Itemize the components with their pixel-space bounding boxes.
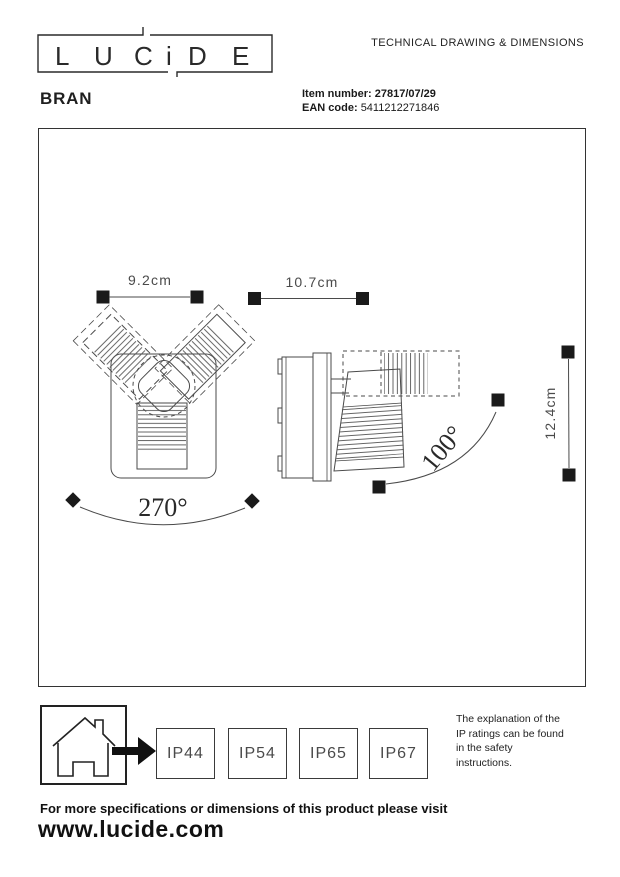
logo-letter-c: C xyxy=(134,41,153,71)
logo-letter-e: E xyxy=(232,41,249,71)
ip-rating-ip65: IP65 xyxy=(299,728,358,779)
dim-label-front-width: 9.2cm xyxy=(128,272,172,288)
ip-note-line: The explanation of the xyxy=(456,712,564,727)
pan-angle-label: 270° xyxy=(138,493,187,522)
document-title: TECHNICAL DRAWING & DIMENSIONS xyxy=(371,37,584,49)
dimension-height: 12.4cm xyxy=(542,346,576,482)
ean-value: 5411212271846 xyxy=(361,102,440,114)
ip67-label: IP67 xyxy=(380,745,417,763)
dimension-front-width: 9.2cm xyxy=(97,272,204,304)
ip54-label: IP54 xyxy=(239,745,276,763)
product-name: BRAN xyxy=(40,89,92,109)
technical-drawing: 9.2cm 10.7cm 12.4cm xyxy=(39,129,585,686)
ean-label: EAN code: xyxy=(302,102,358,114)
logo-letter-d: D xyxy=(188,41,207,71)
technical-drawing-frame: 9.2cm 10.7cm 12.4cm xyxy=(38,128,586,687)
website-link[interactable]: www.lucide.com xyxy=(38,816,224,843)
logo-letter-l: L xyxy=(55,41,69,71)
ean-row: EAN code: 5411212271846 xyxy=(302,101,439,115)
dim-label-side-width: 10.7cm xyxy=(285,274,338,290)
lucide-logo: L U C i D E xyxy=(37,24,277,80)
ip-note: The explanation of the IP ratings can be… xyxy=(456,712,564,770)
item-number-label: Item number: xyxy=(302,88,372,100)
arrow-right-icon xyxy=(110,736,158,766)
footer-text: For more specifications or dimensions of… xyxy=(40,801,447,816)
tilt-angle-label: 100° xyxy=(415,420,469,476)
pan-angle-callout: 270° xyxy=(65,492,260,525)
top-view-drawing xyxy=(73,305,255,478)
logo-letter-i: i xyxy=(166,41,172,71)
ip44-label: IP44 xyxy=(167,745,204,763)
ip-note-line: in the safety xyxy=(456,741,564,756)
product-identifiers: Item number: 27817/07/29 EAN code: 54112… xyxy=(302,87,439,115)
ip-rating-ip54: IP54 xyxy=(228,728,287,779)
ip65-label: IP65 xyxy=(310,745,347,763)
item-number-row: Item number: 27817/07/29 xyxy=(302,87,439,101)
logo-letter-u: U xyxy=(94,41,113,71)
dim-label-height: 12.4cm xyxy=(542,386,558,439)
item-number-value: 27817/07/29 xyxy=(375,88,436,100)
dimension-side-width: 10.7cm xyxy=(248,274,369,305)
ip-rating-ip67: IP67 xyxy=(369,728,428,779)
spec-sheet-page: L U C i D E TECHNICAL DRAWING & DIMENSIO… xyxy=(0,0,620,877)
ip-note-line: instructions. xyxy=(456,756,564,771)
ip-rating-ip44: IP44 xyxy=(156,728,215,779)
left-spot xyxy=(73,305,173,405)
ip-note-line: IP ratings can be found xyxy=(456,727,564,742)
right-spot xyxy=(155,305,255,405)
